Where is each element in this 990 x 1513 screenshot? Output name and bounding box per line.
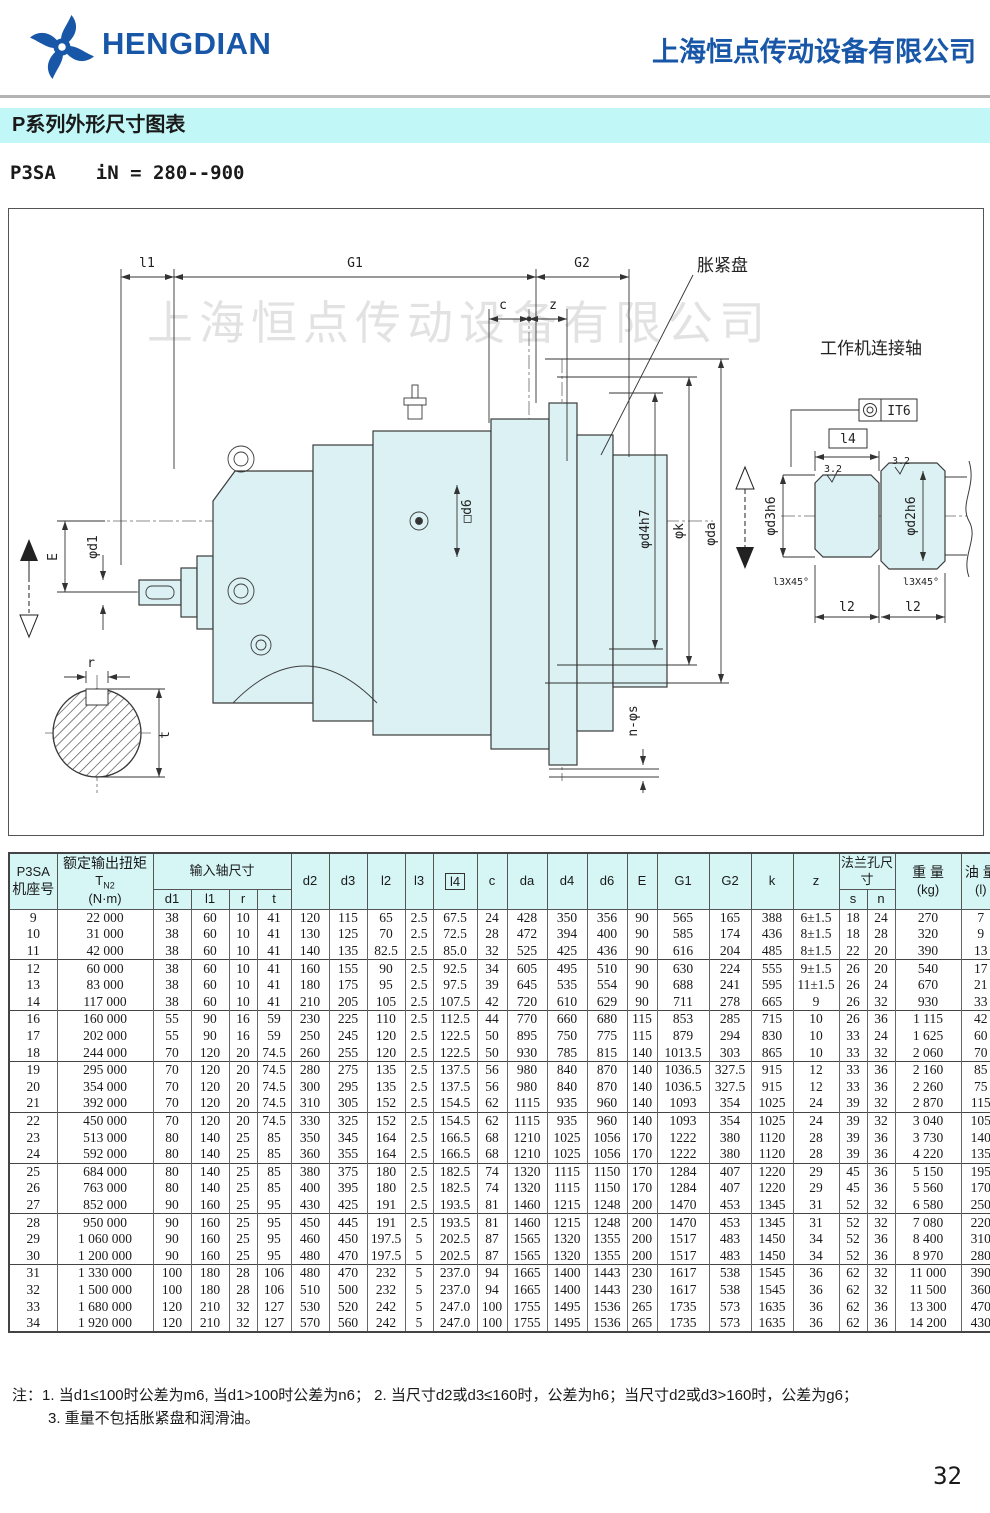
dim-cell: 191 — [367, 1197, 405, 1214]
dim-cell: 1 920 000 — [57, 1315, 153, 1333]
dim-cell: 90 — [627, 909, 657, 926]
dim-cell: 34 — [793, 1247, 839, 1264]
roughness-right-label: 3.2 — [892, 456, 910, 467]
frame-number-cell: 13 — [9, 977, 57, 994]
dim-cell: 500 — [329, 1282, 367, 1299]
dim-cell: 154.5 — [433, 1095, 477, 1112]
dim-cell: 85 — [257, 1146, 291, 1163]
frame-number-cell: 12 — [9, 960, 57, 977]
dim-cell: 95 — [257, 1197, 291, 1214]
dim-cell: 90 — [191, 1028, 229, 1045]
dim-cell: 278 — [709, 994, 751, 1011]
dim-cell: 1355 — [587, 1231, 627, 1248]
dim-cell: 70 — [961, 1044, 990, 1061]
dim-cell: 930 — [507, 1044, 547, 1061]
frame-number-cell: 26 — [9, 1180, 57, 1197]
chamfer-left-label: l3X45° — [773, 577, 809, 588]
dim-cell: 592 000 — [57, 1146, 153, 1163]
dim-cell: 210 — [291, 994, 329, 1011]
dim-cell: 25 — [229, 1163, 257, 1180]
dim-cell: 155 — [329, 960, 367, 977]
dim-cell: 56 — [477, 1061, 507, 1078]
dim-cell: 135 — [961, 1146, 990, 1163]
dim-cell: 10 — [793, 1044, 839, 1061]
dim-cell: 5 560 — [895, 1180, 961, 1197]
dim-cell: 180 — [367, 1180, 405, 1197]
dim-cell: 9 — [961, 926, 990, 943]
dim-cell: 36 — [867, 1231, 895, 1248]
dim-cell: 166.5 — [433, 1146, 477, 1163]
dim-cell: 354 — [709, 1095, 751, 1112]
dim-cell: 670 — [895, 977, 961, 994]
dim-cell: 100 — [477, 1315, 507, 1333]
dim-cell: 510 — [291, 1282, 329, 1299]
dim-cell: 525 — [507, 943, 547, 960]
dim-cell: 38 — [153, 960, 191, 977]
dim-cell: 140 — [291, 943, 329, 960]
dim-cell: 8 400 — [895, 1231, 961, 1248]
dim-cell: 1025 — [751, 1112, 793, 1129]
dim-cell: 90 — [367, 960, 405, 977]
dim-cell: 9 — [793, 994, 839, 1011]
dim-cell: 36 — [793, 1265, 839, 1282]
dim-cell: 82.5 — [367, 943, 405, 960]
dim-cell: 70 — [367, 926, 405, 943]
dim-cell: 2.5 — [405, 909, 433, 926]
dim-cell: 13 — [961, 943, 990, 960]
dim-cell: 595 — [751, 977, 793, 994]
note-item-2: 2. 当尺寸d2或d3≤160时，公差为h6；当尺寸d2或d3>160时，公差为… — [374, 1387, 858, 1404]
dim-cell: 55 — [153, 1028, 191, 1045]
dim-cell: 1210 — [507, 1129, 547, 1146]
dim-cell: 65 — [367, 909, 405, 926]
chamfer-right-label: l3X45° — [903, 577, 939, 588]
torque-header-cn: 额定输出扭矩 — [58, 855, 153, 873]
dim-cell: 520 — [329, 1298, 367, 1315]
frame-number-cell: 28 — [9, 1214, 57, 1231]
dim-cell: 2.5 — [405, 1197, 433, 1214]
dim-cell: 4 220 — [895, 1146, 961, 1163]
dim-l2-right-label: l2 — [905, 600, 921, 615]
dim-cell: 1120 — [751, 1146, 793, 1163]
dim-cell: 100 — [477, 1298, 507, 1315]
dim-cell: 22 — [839, 943, 867, 960]
table-row: 1383 00038601041180175952.597.5396455355… — [9, 977, 990, 994]
col-d1: d1 — [153, 890, 191, 910]
dim-cell: 1443 — [587, 1282, 627, 1299]
dim-cell: 1115 — [507, 1112, 547, 1129]
dim-cell: 170 — [627, 1180, 657, 1197]
dim-cell: 350 — [547, 909, 587, 926]
dim-cell: 1345 — [751, 1214, 793, 1231]
dim-cell: 400 — [291, 1180, 329, 1197]
catalog-page: HENGDIAN 上海恒点传动设备有限公司 P系列外形尺寸图表 P3SAiN =… — [0, 0, 990, 1513]
dim-cell: 16 — [229, 1028, 257, 1045]
dim-cell: 280 — [291, 1061, 329, 1078]
dim-cell: 1093 — [657, 1095, 709, 1112]
dim-cell: 56 — [477, 1079, 507, 1096]
dim-cell: 33 — [839, 1079, 867, 1096]
col-flange-group: 法兰孔尺寸 — [839, 853, 895, 890]
dim-cell: 32 — [867, 1112, 895, 1129]
dim-cell: 115 — [627, 1011, 657, 1028]
dim-cell: 247.0 — [433, 1298, 477, 1315]
dim-cell: 197.5 — [367, 1231, 405, 1248]
dim-cell: 36 — [867, 1079, 895, 1096]
dim-cell: 32 — [867, 1044, 895, 1061]
dim-cell: 711 — [657, 994, 709, 1011]
dim-cell: 1 200 000 — [57, 1247, 153, 1264]
dim-cell: 62 — [839, 1282, 867, 1299]
dim-cell: 160 — [191, 1231, 229, 1248]
dim-d3h6-label: φd3h6 — [764, 496, 779, 535]
dim-cell: 94 — [477, 1282, 507, 1299]
dim-cell: 74 — [477, 1163, 507, 1180]
dim-cell: 52 — [839, 1247, 867, 1264]
dimension-drawing: 上海恒点传动设备有限公司 — [8, 208, 984, 836]
dim-cell: 879 — [657, 1028, 709, 1045]
dim-cell: 2.5 — [405, 1163, 433, 1180]
dim-cell: 241 — [709, 977, 751, 994]
dim-cell: 72.5 — [433, 926, 477, 943]
dim-cell: 74.5 — [257, 1061, 291, 1078]
dim-cell: 513 000 — [57, 1129, 153, 1146]
dim-cell: 870 — [587, 1079, 627, 1096]
table-row: 27852 0009016025954304251912.5193.581146… — [9, 1197, 990, 1214]
dim-cell: 90 — [191, 1011, 229, 1028]
dim-cell: 31 — [793, 1214, 839, 1231]
dim-cell: 270 — [895, 909, 961, 926]
dim-cell: 450 000 — [57, 1112, 153, 1129]
frame-header-model: P3SA — [10, 864, 57, 880]
col-z: z — [793, 853, 839, 909]
dim-cell: 95 — [367, 977, 405, 994]
dim-cell: 1013.5 — [657, 1044, 709, 1061]
dim-cell: 325 — [329, 1112, 367, 1129]
dim-cell: 3 040 — [895, 1112, 961, 1129]
dim-cell: 70 — [153, 1044, 191, 1061]
dim-cell: 1056 — [587, 1129, 627, 1146]
dim-cell: 32 — [867, 1197, 895, 1214]
dim-cell: 97.5 — [433, 977, 477, 994]
dim-cell: 295 — [329, 1079, 367, 1096]
frame-number-cell: 33 — [9, 1298, 57, 1315]
model-subtitle: P3SAiN = 280--900 — [10, 162, 244, 184]
dim-cell: 34 — [793, 1231, 839, 1248]
dim-cell: 895 — [507, 1028, 547, 1045]
dim-cell: 90 — [153, 1197, 191, 1214]
dim-cell: 1735 — [657, 1298, 709, 1315]
dim-cell: 25 — [229, 1231, 257, 1248]
dim-cell: 630 — [657, 960, 709, 977]
dim-cell: 11±1.5 — [793, 977, 839, 994]
dim-cell: 483 — [709, 1231, 751, 1248]
dim-cell: 395 — [329, 1180, 367, 1197]
dim-cell: 280 — [961, 1247, 990, 1264]
col-frame-header: P3SA 机座号 — [9, 853, 57, 909]
dim-cell: 1755 — [507, 1315, 547, 1333]
dim-cell: 95 — [257, 1231, 291, 1248]
dim-cell: 38 — [153, 926, 191, 943]
table-row: 1142 0003860104114013582.52.585.03252542… — [9, 943, 990, 960]
dim-cell: 39 — [839, 1095, 867, 1112]
dim-cell: 495 — [547, 960, 587, 977]
dim-cell: 1565 — [507, 1247, 547, 1264]
col-l3: l3 — [405, 853, 433, 909]
dim-cell: 1036.5 — [657, 1061, 709, 1078]
col-l4: l4 — [433, 853, 477, 909]
dim-cell: 1635 — [751, 1315, 793, 1333]
dim-cell: 870 — [587, 1061, 627, 1078]
oil-level-arrows-left — [20, 539, 38, 637]
dim-cell: 10 — [229, 994, 257, 1011]
dim-cell: 26 — [839, 1011, 867, 1028]
dim-cell: 1025 — [751, 1095, 793, 1112]
dim-cell: 67.5 — [433, 909, 477, 926]
dim-cell: 140 — [191, 1180, 229, 1197]
dim-cell: 210 — [191, 1315, 229, 1333]
dim-cell: 175 — [329, 977, 367, 994]
dim-cell: 20 — [229, 1095, 257, 1112]
dim-cell: 200 — [627, 1231, 657, 1248]
dim-cell: 645 — [507, 977, 547, 994]
dim-cell: 3 730 — [895, 1129, 961, 1146]
dim-cell: 555 — [751, 960, 793, 977]
gearbox-housing — [139, 403, 667, 765]
dim-cell: 2.5 — [405, 1028, 433, 1045]
dim-cell: 750 — [547, 1028, 587, 1045]
dim-cell: 28 — [867, 926, 895, 943]
dim-cell: 38 — [153, 909, 191, 926]
dim-cell: 26 — [839, 994, 867, 1011]
dim-cell: 120 — [191, 1095, 229, 1112]
dim-cell: 33 — [839, 1061, 867, 1078]
dim-cell: 2.5 — [405, 994, 433, 1011]
dim-cell: 83 000 — [57, 977, 153, 994]
dim-cell: 5 150 — [895, 1163, 961, 1180]
dim-cell: 205 — [329, 994, 367, 1011]
dim-cell: 1517 — [657, 1247, 709, 1264]
col-c: c — [477, 853, 507, 909]
table-row: 18244 000701202074.52602551202.5122.5509… — [9, 1044, 990, 1061]
col-k: k — [751, 853, 793, 909]
table-row: 19295 000701202074.52802751352.5137.5569… — [9, 1061, 990, 1078]
dim-cell: 1443 — [587, 1265, 627, 1282]
table-row: 17202 000559016592502451202.5122.5508957… — [9, 1028, 990, 1045]
dim-cell: 245 — [329, 1028, 367, 1045]
dim-cell: 81 — [477, 1214, 507, 1231]
dim-cell: 11 000 — [895, 1265, 961, 1282]
dim-cell: 1036.5 — [657, 1079, 709, 1096]
dim-cell: 407 — [709, 1180, 751, 1197]
dim-cell: 16 — [229, 1011, 257, 1028]
dim-cell: 137.5 — [433, 1061, 477, 1078]
dim-cell: 127 — [257, 1315, 291, 1333]
dim-d1-label: φd1 — [86, 535, 101, 558]
dim-cell: 39 — [839, 1112, 867, 1129]
dim-cell: 1400 — [547, 1265, 587, 1282]
dim-cell: 360 — [291, 1146, 329, 1163]
table-row: 25684 0008014025853803751802.5182.574132… — [9, 1163, 990, 1180]
section-title-bar: P系列外形尺寸图表 — [0, 108, 990, 143]
dim-cell: 68 — [477, 1146, 507, 1163]
dim-cell: 230 — [627, 1265, 657, 1282]
frame-header-cn: 机座号 — [10, 881, 57, 899]
dim-cell: 1517 — [657, 1231, 709, 1248]
dim-cell: 106 — [257, 1265, 291, 1282]
dim-cell: 7 080 — [895, 1214, 961, 1231]
dim-cell: 125 — [329, 926, 367, 943]
table-row: 24592 0008014025853603551642.5166.568121… — [9, 1146, 990, 1163]
dim-cell: 6 580 — [895, 1197, 961, 1214]
dim-cell: 36 — [793, 1282, 839, 1299]
dim-cell: 605 — [507, 960, 547, 977]
dim-cell: 20 — [867, 960, 895, 977]
dim-cell: 1735 — [657, 1315, 709, 1333]
dim-cell: 327.5 — [709, 1061, 751, 1078]
dim-cell: 1635 — [751, 1298, 793, 1315]
dim-cell: 535 — [547, 977, 587, 994]
dim-cell: 12 — [793, 1079, 839, 1096]
table-row: 291 060 000901602595460450197.55202.5871… — [9, 1231, 990, 1248]
dim-cell: 160 — [191, 1197, 229, 1214]
dim-cell: 1150 — [587, 1163, 627, 1180]
dim-cell: 41 — [257, 994, 291, 1011]
dim-cell: 41 — [257, 909, 291, 926]
dim-cell: 840 — [547, 1061, 587, 1078]
dim-cell: 12 — [793, 1061, 839, 1078]
frame-number-cell: 9 — [9, 909, 57, 926]
dim-g1-label: G1 — [347, 256, 363, 271]
dim-cell: 10 — [229, 960, 257, 977]
dim-cell: 24 — [477, 909, 507, 926]
dim-cell: 33 — [839, 1044, 867, 1061]
dim-cell: 472 — [507, 926, 547, 943]
dim-cell: 2.5 — [405, 977, 433, 994]
dim-cell: 32 — [229, 1315, 257, 1333]
dim-cell: 2.5 — [405, 1146, 433, 1163]
dim-cell: 36 — [793, 1298, 839, 1315]
dim-cell: 8 970 — [895, 1247, 961, 1264]
dim-cell: 193.5 — [433, 1214, 477, 1231]
section-title: P系列外形尺寸图表 — [0, 108, 990, 143]
dim-l1-label: l1 — [139, 256, 155, 271]
dim-cell: 200 — [627, 1247, 657, 1264]
dim-cell: 1545 — [751, 1265, 793, 1282]
dim-cell: 74.5 — [257, 1095, 291, 1112]
dim-cell: 540 — [895, 960, 961, 977]
frame-number-cell: 14 — [9, 994, 57, 1011]
dim-cell: 388 — [751, 909, 793, 926]
dim-cell: 62 — [477, 1112, 507, 1129]
dim-cell: 2.5 — [405, 943, 433, 960]
dim-cell: 135 — [367, 1061, 405, 1078]
dim-cell: 85.0 — [433, 943, 477, 960]
dimension-table-wrap: P3SA 机座号 额定输出扭矩 TN2 (N·m) 输入轴尺寸 d2 d3 l2… — [8, 852, 982, 1333]
dim-cell: 244 000 — [57, 1044, 153, 1061]
dim-cell: 160 — [191, 1214, 229, 1231]
dim-cell: 14 200 — [895, 1315, 961, 1333]
dim-cell: 24 — [793, 1095, 839, 1112]
dim-cell: 74.5 — [257, 1044, 291, 1061]
dim-cell: 59 — [257, 1011, 291, 1028]
dim-cell: 10 — [793, 1011, 839, 1028]
dim-cell: 20 — [229, 1112, 257, 1129]
dim-cell: 140 — [627, 1095, 657, 1112]
dim-cell: 26 — [839, 977, 867, 994]
dim-cell: 164 — [367, 1146, 405, 1163]
dim-cell: 1460 — [507, 1197, 547, 1214]
dim-cell: 485 — [751, 943, 793, 960]
dim-cell: 182.5 — [433, 1180, 477, 1197]
dim-cell: 9±1.5 — [793, 960, 839, 977]
shrink-disk — [613, 455, 667, 687]
dim-cell: 122.5 — [433, 1044, 477, 1061]
dim-cell: 250 — [961, 1197, 990, 1214]
dim-cell: 2.5 — [405, 1044, 433, 1061]
dim-cell: 120 — [191, 1112, 229, 1129]
frame-number-cell: 32 — [9, 1282, 57, 1299]
dim-cell: 36 — [867, 1315, 895, 1333]
dim-cell: 60 — [191, 994, 229, 1011]
dim-cell: 1536 — [587, 1298, 627, 1315]
dim-cell: 265 — [627, 1298, 657, 1315]
dim-cell: 1 115 — [895, 1011, 961, 1028]
dim-cell: 350 — [291, 1129, 329, 1146]
dim-cell: 42 000 — [57, 943, 153, 960]
dim-cell: 830 — [751, 1028, 793, 1045]
dim-cell: 453 — [709, 1214, 751, 1231]
dim-cell: 428 — [507, 909, 547, 926]
dim-cell: 52 — [839, 1231, 867, 1248]
dim-cell: 36 — [867, 1180, 895, 1197]
dim-cell: 115 — [329, 909, 367, 926]
dim-cell: 460 — [291, 1231, 329, 1248]
dim-cell: 140 — [961, 1129, 990, 1146]
dim-cell: 10 — [229, 977, 257, 994]
dim-cell: 629 — [587, 994, 627, 1011]
col-t: t — [257, 890, 291, 910]
dim-cell: 32 — [867, 1282, 895, 1299]
dim-cell: 120 — [153, 1298, 191, 1315]
frame-number-cell: 25 — [9, 1163, 57, 1180]
table-row: 22450 000701202074.53303251522.5154.5621… — [9, 1112, 990, 1129]
dim-cell: 36 — [867, 1061, 895, 1078]
dim-cell: 170 — [961, 1180, 990, 1197]
dim-cell: 5 — [405, 1265, 433, 1282]
dim-cell: 85 — [257, 1163, 291, 1180]
dim-cell: 310 — [291, 1095, 329, 1112]
col-da: da — [507, 853, 547, 909]
dim-cell: 1495 — [547, 1315, 587, 1333]
dim-cell: 197.5 — [367, 1247, 405, 1264]
dim-cell: 100 — [153, 1282, 191, 1299]
dim-cell: 480 — [291, 1247, 329, 1264]
dimension-table: P3SA 机座号 额定输出扭矩 TN2 (N·m) 输入轴尺寸 d2 d3 l2… — [8, 852, 990, 1333]
dim-z-label: z — [549, 298, 557, 313]
dim-cell: 28 — [793, 1146, 839, 1163]
col-oil: 油 量(l) — [961, 853, 990, 909]
dim-cell: 573 — [709, 1315, 751, 1333]
dim-cell: 225 — [329, 1011, 367, 1028]
dim-cell: 140 — [627, 1044, 657, 1061]
dim-cell: 935 — [547, 1112, 587, 1129]
dim-cell: 39 — [839, 1129, 867, 1146]
dim-cell: 20 — [229, 1079, 257, 1096]
table-header: P3SA 机座号 额定输出扭矩 TN2 (N·m) 输入轴尺寸 d2 d3 l2… — [9, 853, 990, 909]
dim-cell: 2 870 — [895, 1095, 961, 1112]
logo-wordmark: HENGDIAN — [102, 26, 271, 62]
